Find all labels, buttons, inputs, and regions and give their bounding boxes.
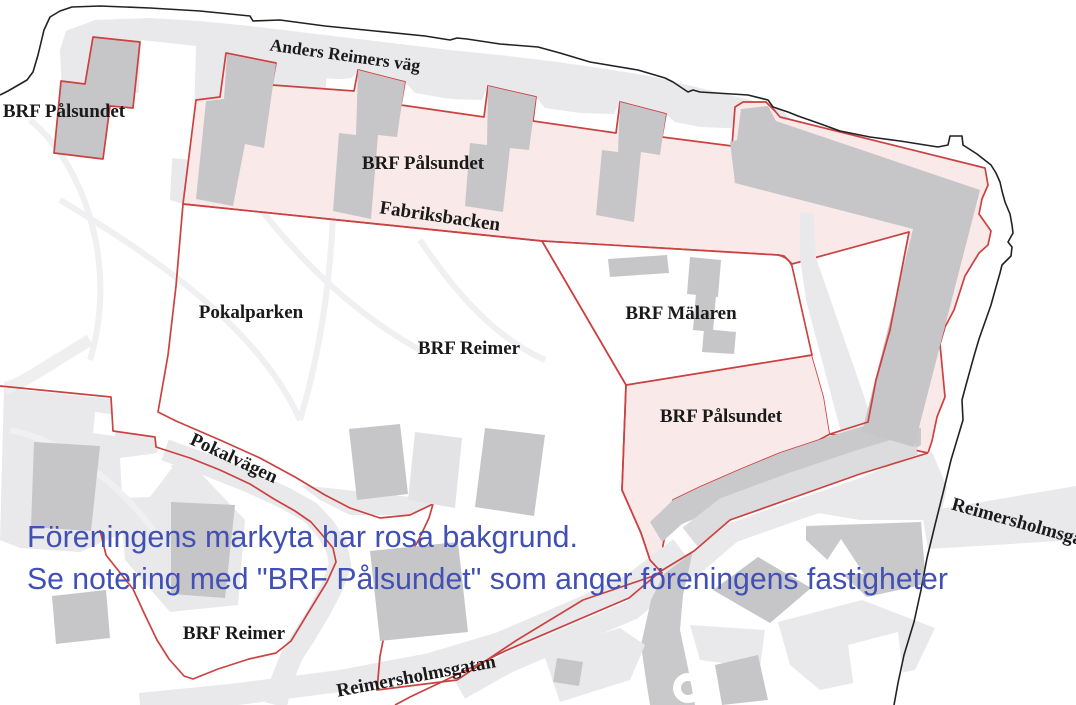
svg-text:BRF Reimer: BRF Reimer — [183, 623, 286, 644]
svg-text:BRF Pålsundet: BRF Pålsundet — [660, 406, 783, 427]
svg-text:Pokalparken: Pokalparken — [199, 302, 304, 323]
svg-text:BRF Mälaren: BRF Mälaren — [625, 303, 737, 324]
svg-text:BRF Pålsundet: BRF Pålsundet — [3, 101, 126, 122]
svg-text:BRF Pålsundet: BRF Pålsundet — [362, 153, 485, 174]
svg-text:BRF Reimer: BRF Reimer — [418, 338, 521, 359]
